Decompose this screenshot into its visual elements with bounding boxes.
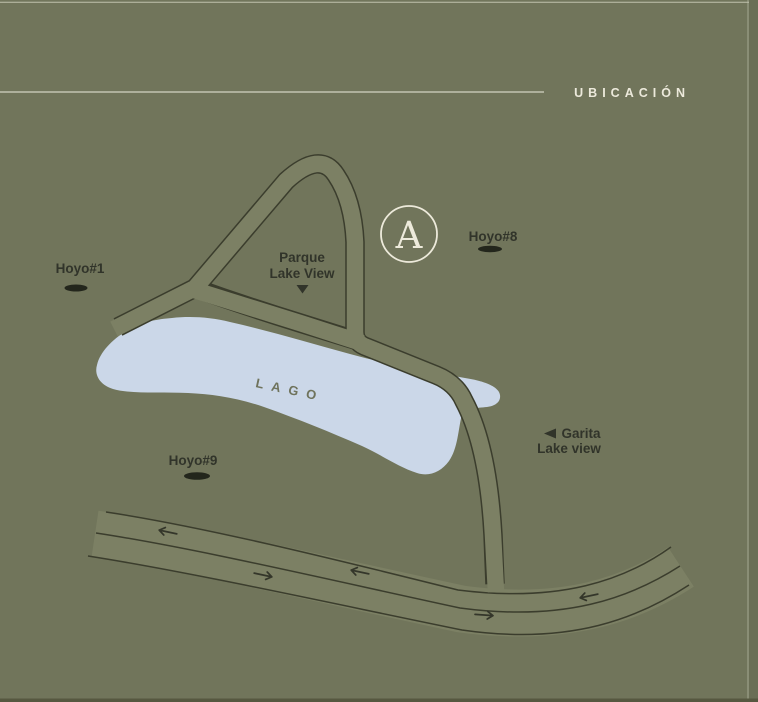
hole-9-label: Hoyo#9 xyxy=(169,453,218,468)
marker-a-letter: A xyxy=(395,214,424,257)
gate-label-line2: Lake view xyxy=(537,441,601,456)
bottom-edge-strip xyxy=(0,699,758,702)
location-map-page: LAGO Hoyo#1 Hoyo#8 xyxy=(0,0,758,702)
hole-8-label: Hoyo#8 xyxy=(469,229,518,244)
hole-9-dot-icon xyxy=(184,472,210,480)
park-label-line2: Lake View xyxy=(269,266,335,281)
location-map: LAGO Hoyo#1 Hoyo#8 xyxy=(0,0,758,702)
hole-1-label: Hoyo#1 xyxy=(56,261,105,276)
park-label-line1: Parque xyxy=(279,250,325,265)
hole-1-dot-icon xyxy=(65,285,88,292)
page-title: UBICACIÓN xyxy=(574,85,690,100)
hole-8-dot-icon xyxy=(478,246,502,252)
right-edge-strip xyxy=(749,0,758,702)
gate-label-line1: Garita xyxy=(561,426,601,441)
